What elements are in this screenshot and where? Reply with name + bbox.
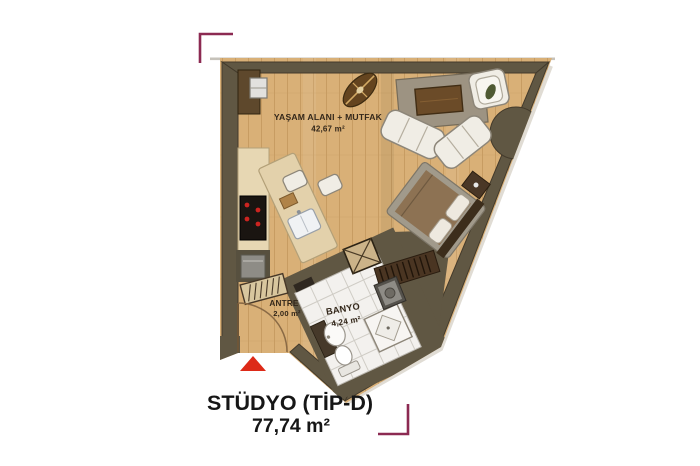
room-label-entry: ANTRE [269,299,299,308]
plan-title: STÜDYO (TİP-D) [207,390,373,415]
oven [241,255,265,278]
plan-interior [215,58,555,408]
floor-plan-svg: YAŞAM ALANI + MUTFAK 42,67 m² ANTRE 2,00… [0,0,700,466]
room-label-living: YAŞAM ALANI + MUTFAK [274,112,383,122]
room-area-living: 42,67 m² [311,125,345,134]
entrance-arrow [240,356,266,371]
wall-left [222,62,238,358]
plan-total-area: 77,74 m² [252,415,331,437]
floor-plan-page: YAŞAM ALANI + MUTFAK 42,67 m² ANTRE 2,00… [0,0,700,466]
room-area-entry: 2,00 m² [273,309,301,318]
armchair [468,68,511,111]
cooktop [240,196,266,240]
corner-marker-bottom-right [378,404,408,434]
round-column [490,107,542,159]
